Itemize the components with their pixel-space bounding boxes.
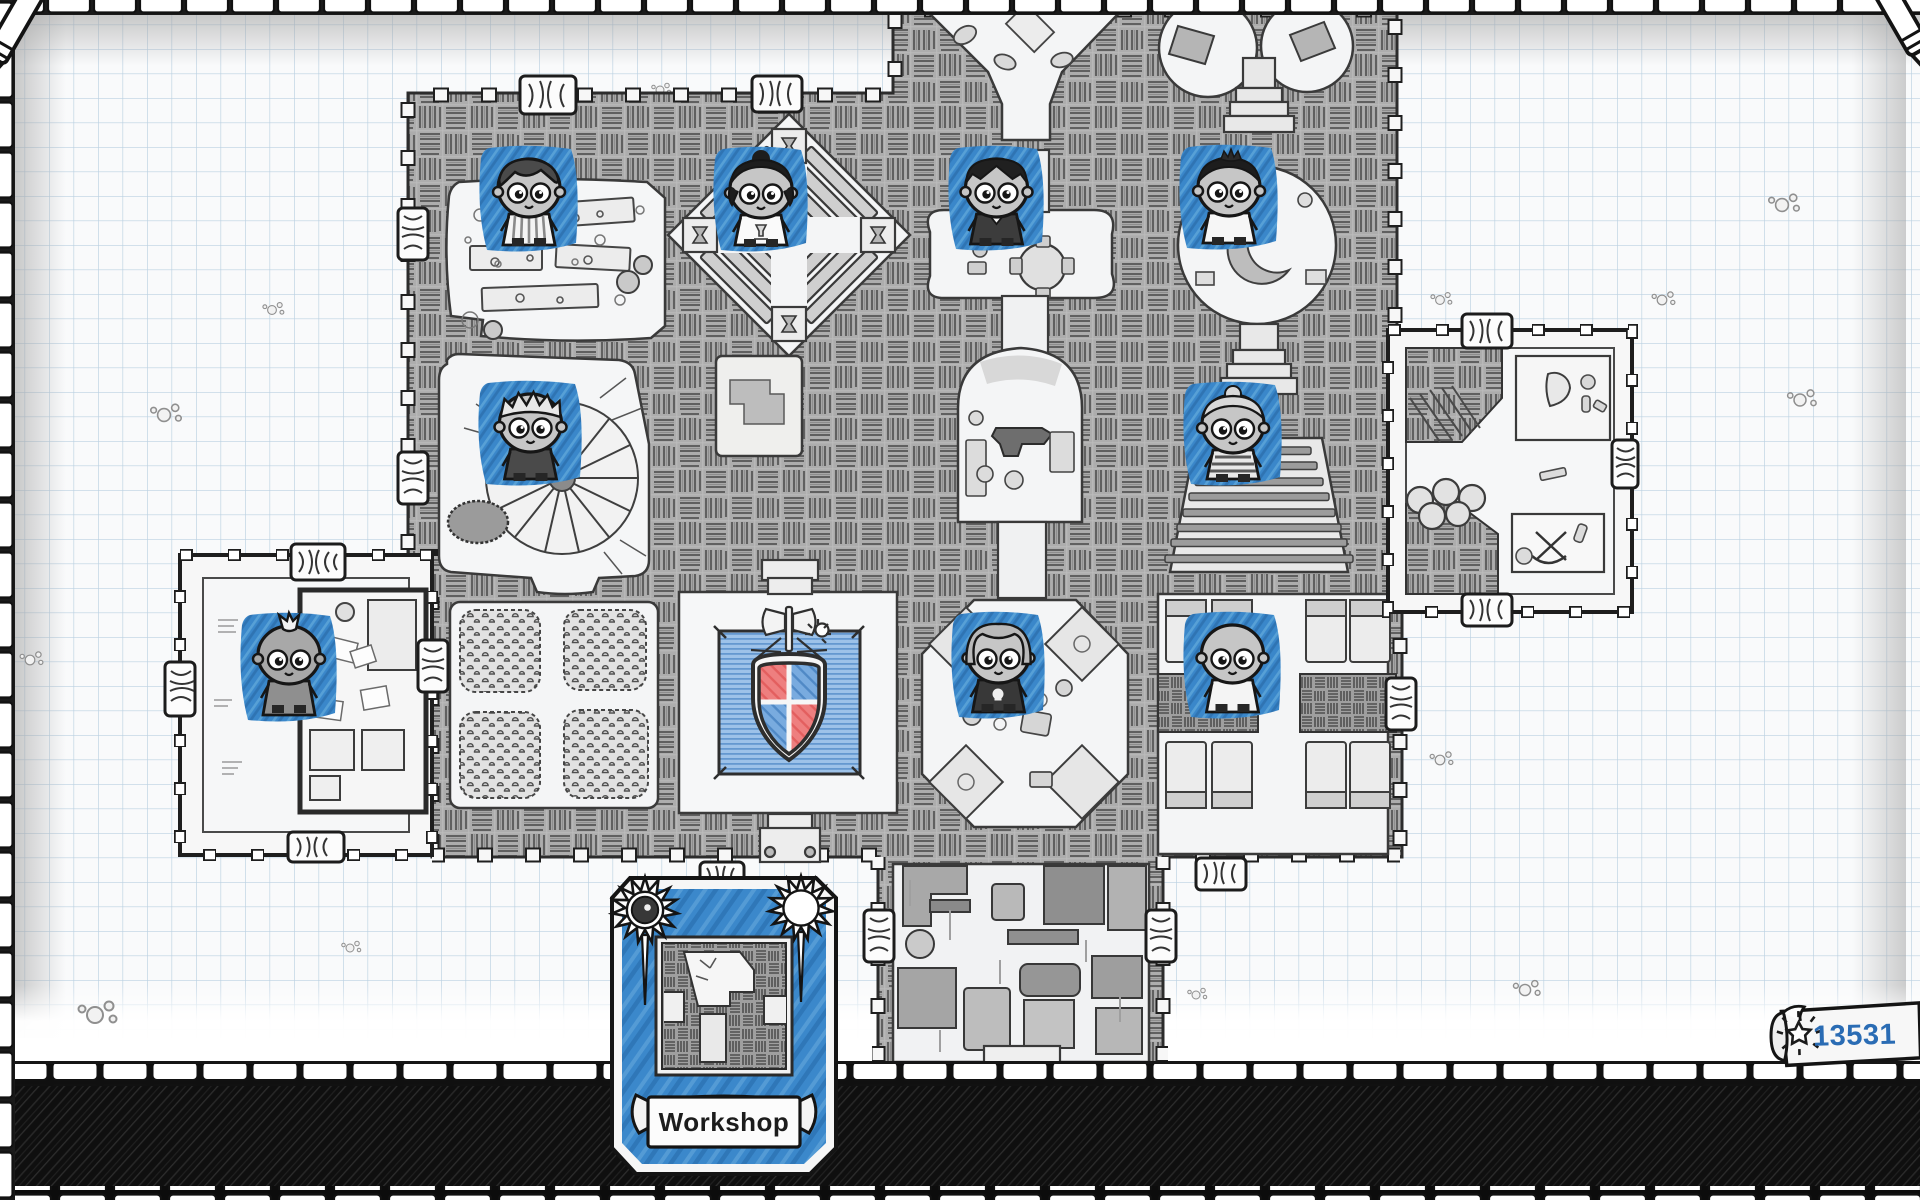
svg-text:Workshop: Workshop [659,1107,790,1137]
svg-text:13531: 13531 [1813,1019,1897,1053]
